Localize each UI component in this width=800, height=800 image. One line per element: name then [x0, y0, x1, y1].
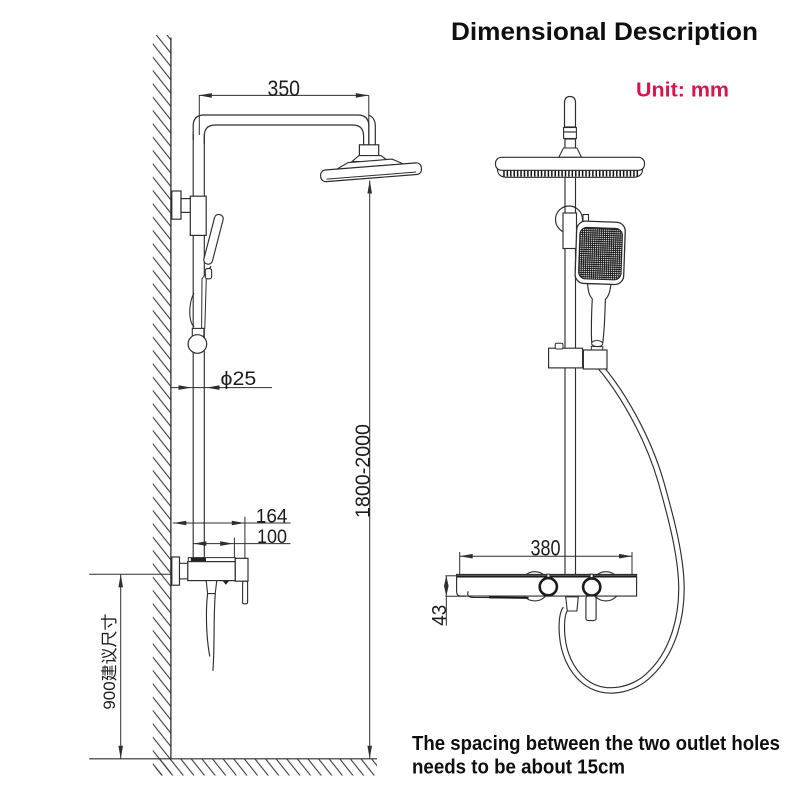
- svg-text:100: 100: [257, 527, 287, 548]
- svg-text:The spacing between the two ou: The spacing between the two outlet holes: [412, 732, 780, 755]
- svg-text:380: 380: [531, 536, 561, 561]
- svg-text:needs to be about 15cm: needs to be about 15cm: [412, 756, 625, 779]
- svg-text:Unit: mm: Unit: mm: [636, 80, 729, 102]
- svg-text:Dimensional Description: Dimensional Description: [451, 18, 758, 46]
- svg-text:350: 350: [268, 76, 301, 101]
- svg-text:164: 164: [256, 506, 288, 527]
- svg-text:900建议尺寸: 900建议尺寸: [100, 614, 119, 710]
- svg-text:1800-2000: 1800-2000: [351, 424, 374, 518]
- svg-text:43: 43: [429, 605, 451, 626]
- svg-text:ϕ25: ϕ25: [221, 369, 257, 390]
